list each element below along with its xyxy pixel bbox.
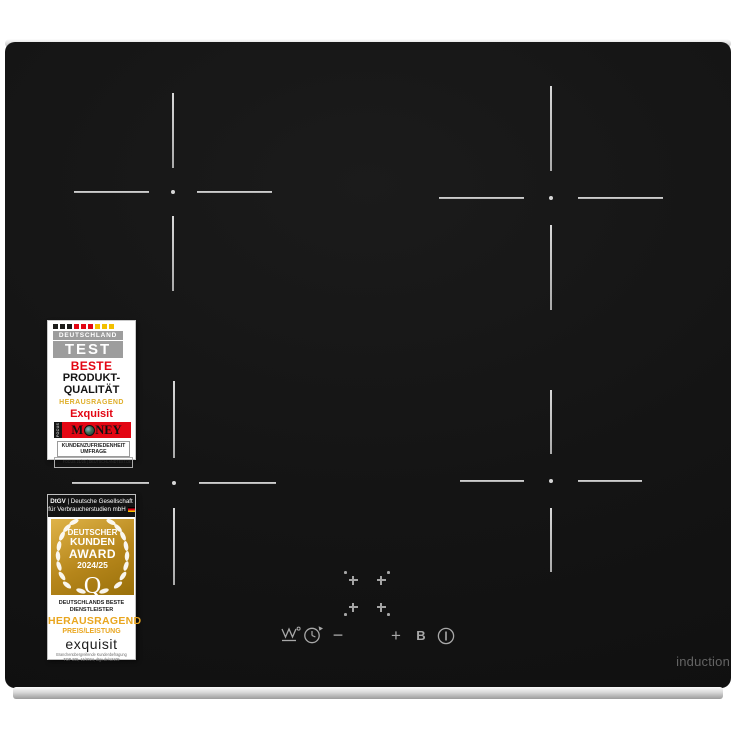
ka-subtitle: DEUTSCHLANDS BESTE DIENSTLEISTER — [48, 600, 135, 613]
ka-award-year: 2024/25 — [51, 560, 134, 570]
badge-deutschland-test: DEUTSCHLAND TEST BESTE PRODUKT- QUALITÄT… — [47, 320, 136, 460]
dt-category-box: KUNDENZUFRIEDENHEIT UMFRAGE — [57, 441, 130, 457]
ka-source: Branchenübergreifende Kundenbefragung TO… — [48, 652, 135, 663]
dt-source-text: FOCUS 21/25 | DEUTSCHLANDTEST.DE — [63, 458, 125, 465]
timer-icon — [302, 624, 324, 646]
power-icon — [436, 626, 456, 646]
german-flag-icon — [128, 507, 135, 512]
dt-award-line1: PRODUKT- — [48, 372, 135, 384]
flag-square — [74, 324, 79, 329]
booster-control: B — [412, 629, 430, 643]
dt-category-line2: UMFRAGE — [58, 449, 129, 455]
dt-award-line2: QUALITÄT — [48, 384, 135, 396]
flag-square — [102, 324, 107, 329]
ka-source-line2: TOP 205, 11/2024, dtgv.de/12109 — [56, 657, 127, 662]
flag-square — [109, 324, 114, 329]
minus-control: − — [328, 626, 348, 644]
ka-award-line3: AWARD — [51, 548, 134, 560]
flag-square — [88, 324, 93, 329]
ka-rating: HERAUSRAGEND — [48, 615, 135, 627]
dt-rating: HERAUSRAGEND — [48, 399, 135, 406]
dt-header-small: DEUTSCHLAND — [53, 331, 123, 340]
induction-label: induction — [630, 654, 730, 669]
plus-control: + — [386, 627, 406, 644]
money-ney: NEY — [95, 423, 121, 438]
dt-header-big: TEST — [53, 341, 123, 358]
front-trim — [13, 687, 723, 699]
ka-brand: exquisit — [48, 636, 135, 652]
ka-header: DtGV | Deutsche Gesellschaft für Verbrau… — [48, 495, 135, 517]
focus-money-logo: FOCUS MNEY — [54, 422, 131, 438]
ka-award-text: DEUTSCHER KUNDEN AWARD 2024/25 — [51, 528, 134, 570]
ka-header-line1: DtGV | Deutsche Gesellschaft — [48, 498, 135, 506]
ka-gold-panel: DEUTSCHER KUNDEN AWARD 2024/25 Q — [51, 519, 134, 595]
money-wordmark: MNEY — [62, 422, 131, 438]
flag-square — [67, 324, 72, 329]
flag-square — [81, 324, 86, 329]
product-photo: − + B induction DEUTSCHLAND TEST BESTE P… — [0, 0, 736, 736]
money-m: M — [71, 423, 83, 438]
flag-square — [60, 324, 65, 329]
globe-icon — [84, 425, 95, 436]
badge-kunden-award: DtGV | Deutsche Gesellschaft für Verbrau… — [47, 494, 136, 660]
dt-brand: Exquisit — [48, 408, 135, 420]
ka-org-line2: für Verbraucherstudien mbH — [48, 506, 125, 513]
ka-org-rest: | Deutsche Gesellschaft — [66, 498, 133, 505]
flag-square — [53, 324, 58, 329]
flag-squares-row — [53, 324, 114, 329]
ka-rating-category: PREIS/LEISTUNG — [48, 628, 135, 635]
ka-sub-line2: DIENSTLEISTER — [48, 607, 135, 614]
flag-square — [95, 324, 100, 329]
dt-source-box: FOCUS 21/25 | DEUTSCHLANDTEST.DE — [54, 457, 133, 468]
focus-vertical-label: FOCUS — [54, 422, 62, 438]
ka-sub-line1: DEUTSCHLANDS BESTE — [48, 600, 135, 607]
ka-header-line2: für Verbraucherstudien mbH — [48, 506, 135, 514]
keep-warm-icon — [279, 626, 301, 643]
dt-award-level: BESTE — [48, 359, 135, 373]
ka-q-monogram: Q — [51, 574, 134, 598]
ka-org: DtGV — [50, 498, 65, 505]
